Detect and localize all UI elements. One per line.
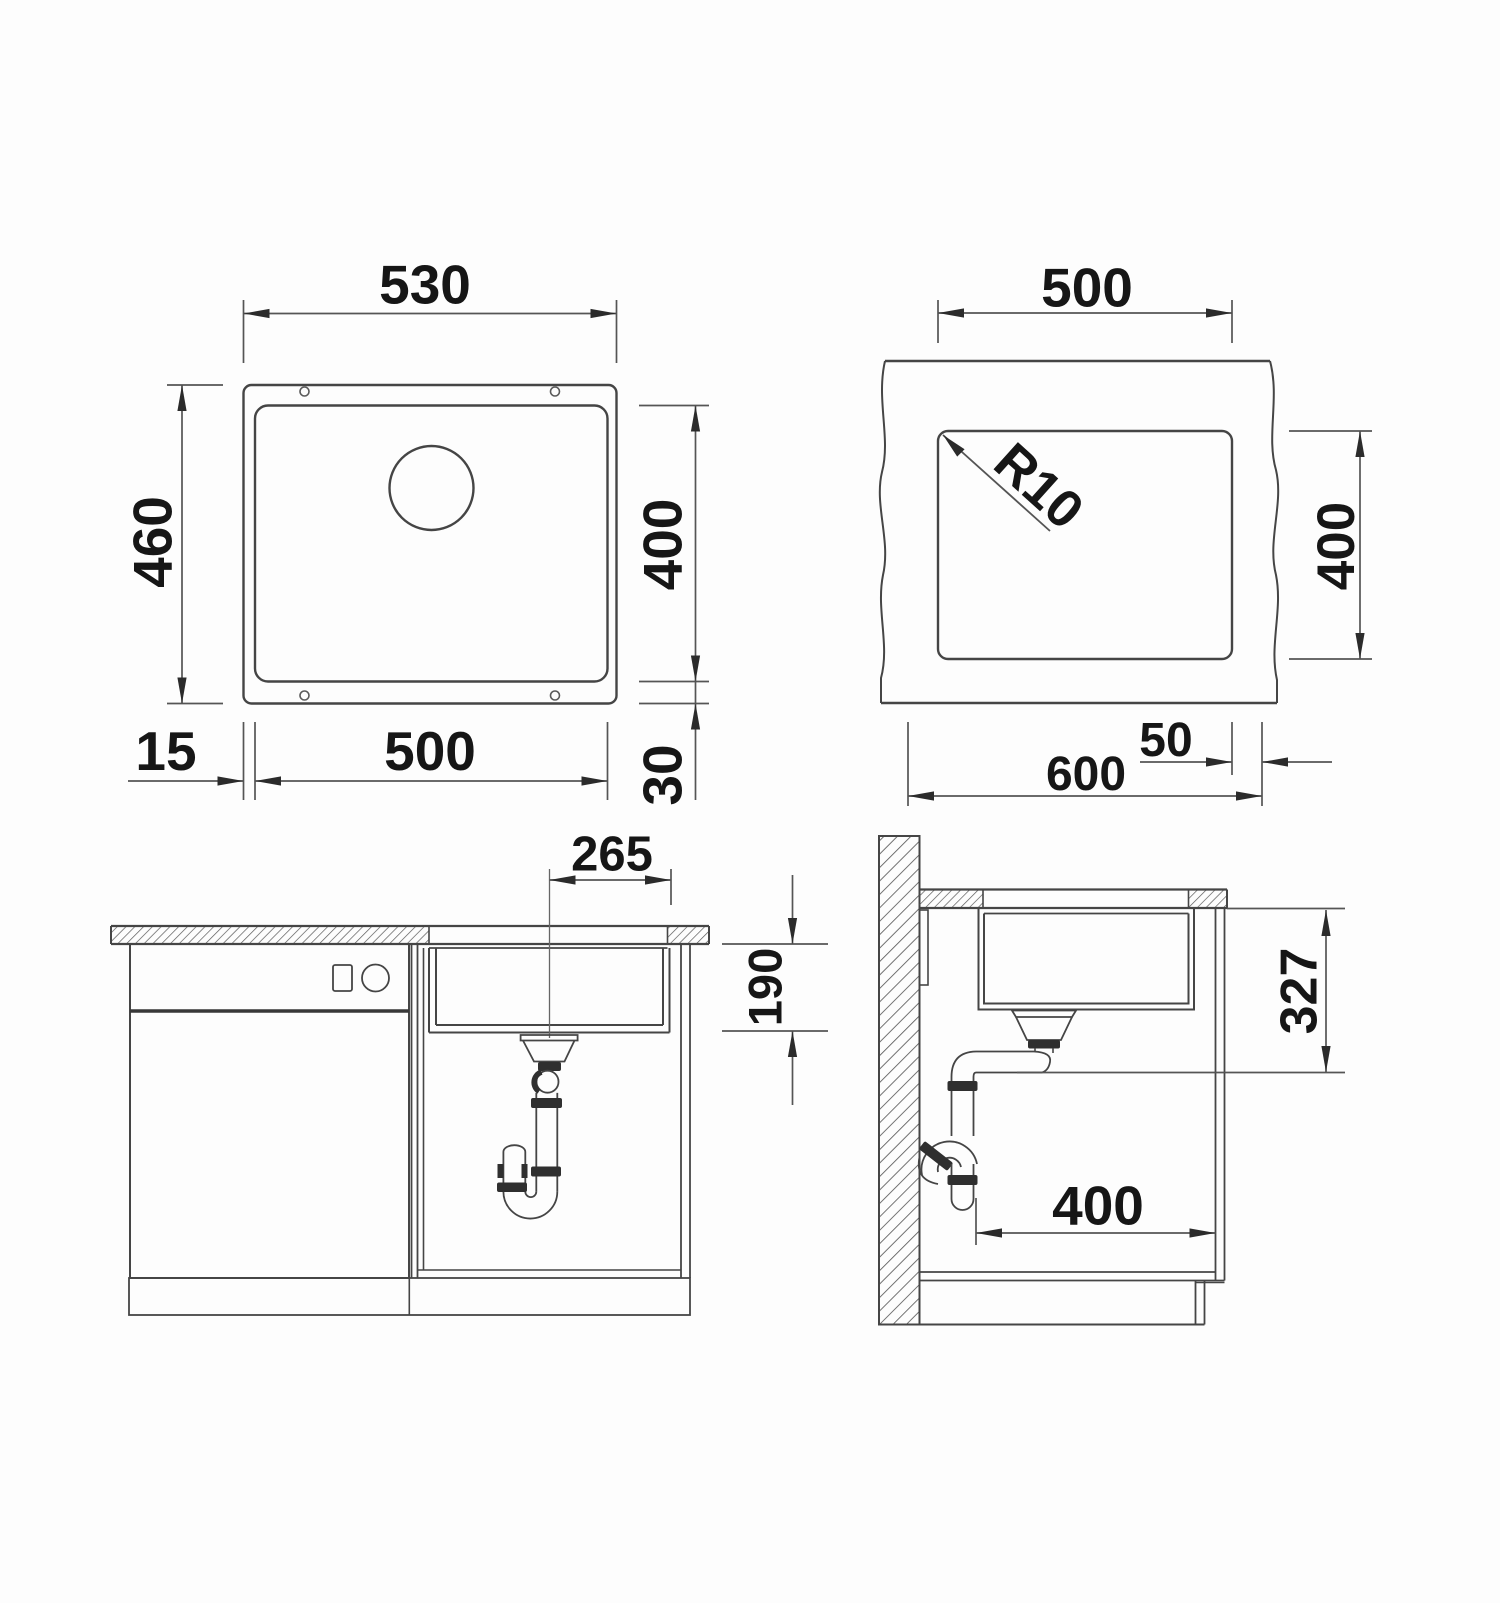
svg-text:190: 190 [739,948,792,1026]
svg-text:30: 30 [632,744,694,805]
svg-text:R10: R10 [983,432,1095,541]
svg-text:400: 400 [1052,1175,1144,1237]
svg-text:600: 600 [1046,748,1126,801]
svg-text:500: 500 [1041,257,1133,319]
svg-text:500: 500 [384,720,476,782]
svg-text:265: 265 [571,827,653,881]
svg-text:400: 400 [632,499,694,591]
svg-text:327: 327 [1271,948,1329,1035]
svg-text:15: 15 [135,720,196,782]
svg-text:50: 50 [1139,714,1192,767]
svg-text:530: 530 [379,254,471,316]
svg-text:400: 400 [1307,502,1366,590]
svg-text:460: 460 [122,496,184,588]
